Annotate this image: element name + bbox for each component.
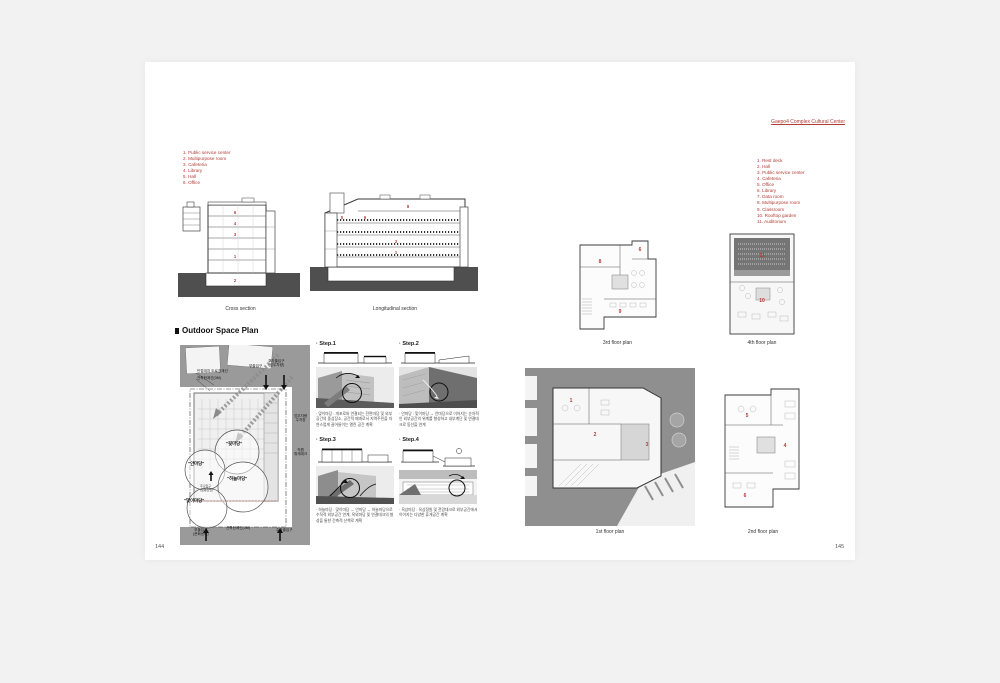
step1-diagram bbox=[316, 350, 394, 408]
step4-caption: · 옥상마당 : 옥상정원 및 전망데크로 외부공간에서 이어지는 다양한 휴게… bbox=[399, 508, 479, 519]
step1-caption: · 맞이마당 : 개포로와 연결되는 전면마당 및 외부공간의 중심장소, 공간… bbox=[316, 412, 394, 428]
legend-item: 11. Auditorium bbox=[757, 219, 805, 225]
first-floor-plan-drawing: 2 3 1 bbox=[525, 368, 695, 526]
site-label-parking-entrance-top: 주차출입구 (업무차량) bbox=[268, 359, 285, 368]
site-label-sub-entrance-bottom: 부출입구 (문화센터) bbox=[193, 528, 209, 537]
site-label-road-boundary: 인접대지 도로경계선 bbox=[197, 369, 228, 373]
svg-text:2: 2 bbox=[594, 432, 597, 438]
site-label-staff-deck: 직원 휴게데크 bbox=[294, 448, 307, 457]
site-label-build-limit-top: 건축한계선(3M) bbox=[197, 376, 221, 380]
legend-item: 6. Office bbox=[183, 180, 231, 186]
step3-diagram bbox=[316, 446, 394, 504]
site-label-yard-back: "뒷마당" bbox=[226, 441, 242, 447]
legend-right: 1. Rest deck2. Hall3. Public service cen… bbox=[757, 158, 805, 225]
second-floor-plan-drawing: 5 4 6 bbox=[713, 385, 813, 520]
page-number-left: 144 bbox=[155, 544, 164, 550]
site-label-parking-entrance-bottom: 주차출입구 bbox=[276, 528, 293, 532]
cross-section-drawing: 6 4 3 1 2 bbox=[178, 195, 303, 305]
step2-diagram bbox=[399, 350, 477, 408]
site-label-staff-parking: 업무차량 주차장 bbox=[294, 414, 307, 423]
step3-label: · Step.3 bbox=[316, 437, 336, 443]
second-floor-plan-caption: 2nd floor plan bbox=[713, 529, 813, 535]
svg-text:6: 6 bbox=[639, 247, 642, 253]
step4-diagram bbox=[399, 446, 477, 504]
cross-section-caption: Cross section bbox=[178, 306, 303, 312]
svg-text:10: 10 bbox=[759, 298, 765, 304]
svg-text:3: 3 bbox=[646, 442, 649, 448]
longitudinal-section-caption: Longitudinal section bbox=[310, 306, 480, 312]
fourth-floor-plan-caption: 4th floor plan bbox=[722, 340, 802, 346]
book-spread: Gaepo4 Complex Cultural Center 1. Public… bbox=[0, 0, 1000, 683]
site-label-build-limit-bottom: 건축한계선(3M) bbox=[226, 526, 250, 530]
legend-left: 1. Public service center2. Multipurpose … bbox=[183, 150, 231, 186]
legend-item: 8. Multipurpose room bbox=[757, 200, 805, 206]
third-floor-plan-caption: 3rd floor plan bbox=[570, 340, 665, 346]
site-label-sub-entrance-top: 부출입구 bbox=[249, 364, 262, 368]
svg-text:1: 1 bbox=[570, 398, 573, 404]
site-label-main-entrance: 주출입구 (보행진입) bbox=[200, 485, 213, 493]
svg-text:8: 8 bbox=[599, 259, 602, 265]
step2-caption: · 안마당 : 맞이마당 → 안마당으로 이어지는 순차적인 외부공간의 위계를… bbox=[399, 412, 479, 428]
step4-label: · Step.4 bbox=[399, 437, 419, 443]
svg-text:5: 5 bbox=[746, 413, 749, 419]
site-label-yard-welcome: "맞이마당" bbox=[184, 498, 204, 504]
svg-text:9: 9 bbox=[619, 309, 622, 315]
third-floor-plan-drawing: 8 6 9 bbox=[570, 237, 665, 337]
longitudinal-section-drawing: 8 6 5 2 1 bbox=[310, 187, 480, 302]
page-number-right: 145 bbox=[835, 544, 844, 550]
outdoor-space-plan-heading: Outdoor Space Plan bbox=[175, 326, 258, 335]
outdoor-heading-label: Outdoor Space Plan bbox=[182, 326, 258, 335]
step3-caption: · 하늘마당 : 맞이마당 → 안마당 → 하늘마당으로 수직적 외부공간 연계… bbox=[316, 508, 394, 524]
step2-label: · Step.2 bbox=[399, 341, 419, 347]
site-label-yard-sky: "하늘마당" bbox=[227, 476, 247, 482]
fourth-floor-plan-drawing: 11 10 bbox=[722, 230, 802, 338]
header-project-link[interactable]: Gaepo4 Complex Cultural Center bbox=[720, 119, 845, 125]
square-bullet-icon bbox=[175, 328, 179, 334]
svg-text:6: 6 bbox=[744, 493, 747, 499]
svg-text:11: 11 bbox=[759, 253, 765, 259]
outdoor-site-plan-drawing bbox=[180, 345, 310, 545]
site-label-yard-inner: "안마당" bbox=[188, 461, 204, 467]
svg-text:4: 4 bbox=[784, 443, 787, 449]
first-floor-plan-caption: 1st floor plan bbox=[525, 529, 695, 535]
step1-label: · Step.1 bbox=[316, 341, 336, 347]
